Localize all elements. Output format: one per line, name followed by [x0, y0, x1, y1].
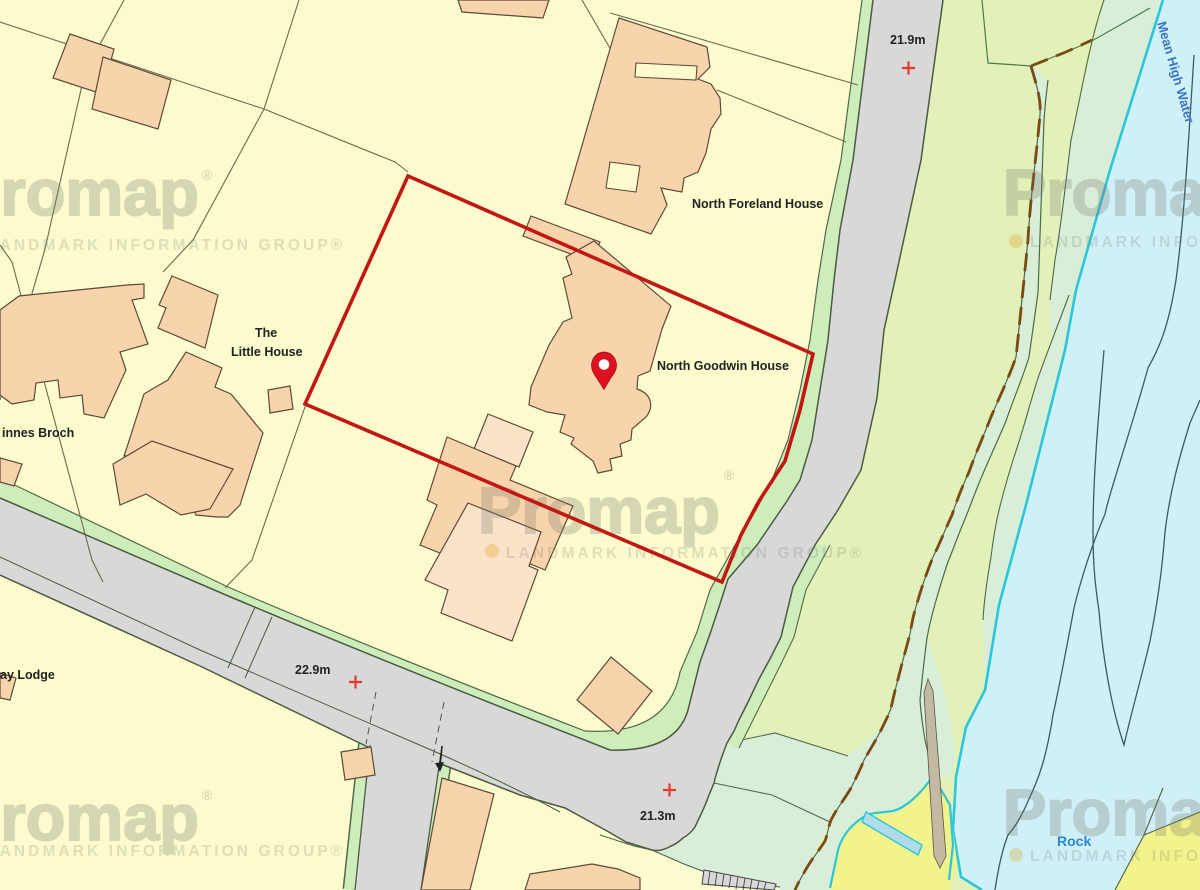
svg-text:Promap: Promap [1003, 776, 1200, 849]
svg-text:Promap: Promap [0, 156, 199, 229]
svg-text:LANDMARK INFORMATION GROUP®: LANDMARK INFORMATION GROUP® [1030, 848, 1200, 865]
svg-text:®: ® [724, 467, 735, 483]
svg-text:21.9m: 21.9m [890, 33, 925, 47]
svg-text:21.3m: 21.3m [640, 809, 675, 823]
svg-text:LANDMARK INFORMATION GROUP®: LANDMARK INFORMATION GROUP® [506, 545, 864, 562]
svg-text:innes Broch: innes Broch [2, 426, 74, 440]
svg-text:ay Lodge: ay Lodge [0, 668, 55, 682]
svg-text:LANDMARK INFORMATION GROUP®: LANDMARK INFORMATION GROUP® [1030, 234, 1200, 251]
svg-text:22.9m: 22.9m [295, 663, 330, 677]
svg-text:Promap: Promap [478, 474, 720, 547]
svg-text:®: ® [202, 167, 213, 183]
svg-text:Rock: Rock [1057, 833, 1091, 849]
svg-text:LANDMARK INFORMATION GROUP®: LANDMARK INFORMATION GROUP® [0, 843, 345, 860]
svg-text:Little House: Little House [231, 345, 303, 359]
svg-text:North Goodwin House: North Goodwin House [657, 359, 789, 373]
svg-text:Promap: Promap [1003, 156, 1200, 229]
svg-text:North Foreland House: North Foreland House [692, 197, 823, 211]
svg-text:LANDMARK INFORMATION GROUP®: LANDMARK INFORMATION GROUP® [0, 237, 345, 254]
svg-text:The: The [255, 326, 277, 340]
svg-text:®: ® [202, 787, 213, 803]
